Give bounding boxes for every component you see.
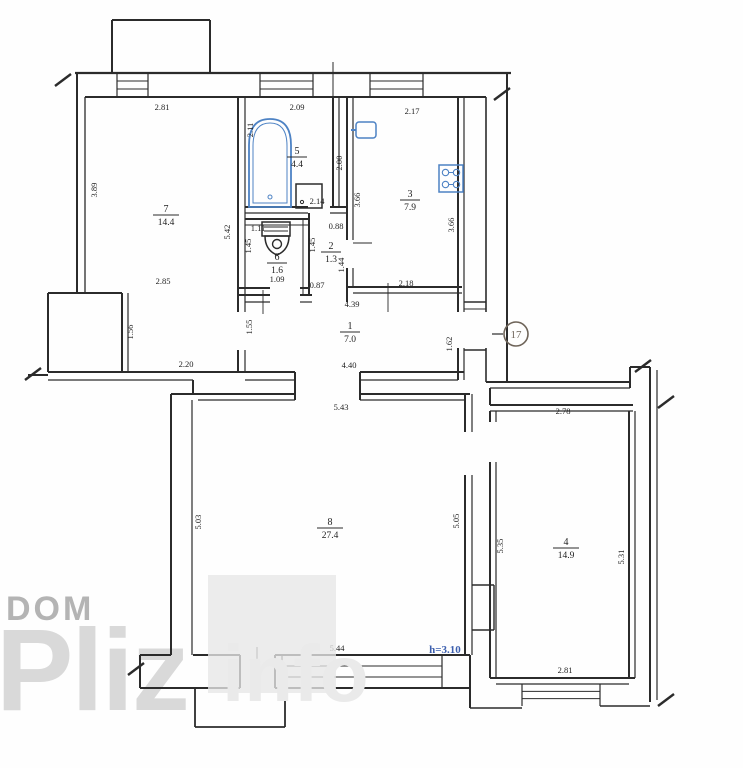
svg-text:8: 8 xyxy=(328,517,333,528)
room-labels-layer: 714.454.461.621.337.917.0827.4414.9 xyxy=(153,146,579,561)
dimension-label: 2.85 xyxy=(156,276,171,286)
dimension-label: 2.81 xyxy=(558,665,573,675)
dimension-label: 3.66 xyxy=(446,218,456,233)
room-1-label: 17.0 xyxy=(340,321,360,345)
dimension-label: 3.66 xyxy=(352,193,362,208)
dimension-label: 4.39 xyxy=(345,299,360,309)
dimension-label: 1.09 xyxy=(270,274,285,284)
svg-text:2: 2 xyxy=(329,241,334,252)
dimension-label: 5.03 xyxy=(193,515,203,530)
dimension-label: 5.42 xyxy=(222,225,232,240)
room-5-label: 54.4 xyxy=(287,146,307,170)
svg-text:7.0: 7.0 xyxy=(344,335,356,345)
toilet-icon xyxy=(262,222,290,255)
bathtub-icon xyxy=(249,119,291,207)
dimension-label: 1.11 xyxy=(251,223,266,233)
stove-icon xyxy=(439,165,463,192)
dimension-label: 1.44 xyxy=(336,257,346,273)
watermark-info: info xyxy=(222,634,369,714)
room-7-label: 714.4 xyxy=(153,204,179,228)
dimension-label: 2.00 xyxy=(334,156,344,171)
dimension-label: 0.87 xyxy=(310,280,325,290)
svg-text:4.4: 4.4 xyxy=(291,160,303,170)
dimension-label: 2.18 xyxy=(399,278,414,288)
dimension-label: 2.09 xyxy=(290,102,305,112)
dimension-label: 1.62 xyxy=(444,337,454,352)
dimension-label: 5.05 xyxy=(451,514,461,529)
svg-text:7.9: 7.9 xyxy=(404,203,416,213)
ceiling-height-note: h=3.10 xyxy=(429,644,461,656)
svg-text:6: 6 xyxy=(275,252,280,263)
floorplan-svg: 714.454.461.621.337.917.0827.4414.9 2.81… xyxy=(0,0,743,768)
dimension-label: 2.17 xyxy=(405,106,420,116)
svg-text:4: 4 xyxy=(564,537,569,548)
kitchen-sink-icon xyxy=(351,122,376,138)
section-ticks-layer xyxy=(25,74,674,706)
walls-layer xyxy=(28,20,657,727)
room-3-label: 37.9 xyxy=(400,189,420,213)
dimension-label: 4.40 xyxy=(342,360,357,370)
svg-text:1: 1 xyxy=(348,321,353,332)
room-4-label: 414.9 xyxy=(553,537,579,561)
dimension-label: 1.55 xyxy=(244,320,254,335)
floorplan-scan: DOM Pliz xyxy=(0,0,743,768)
svg-text:3: 3 xyxy=(408,189,413,200)
dimension-label: 2.78 xyxy=(556,406,571,416)
svg-text:14.9: 14.9 xyxy=(558,551,575,561)
dimension-label: 1.45 xyxy=(307,238,317,253)
dimension-label: 1.56 xyxy=(125,325,135,340)
dimension-label: 5.31 xyxy=(616,550,626,565)
dimension-label: 2.14 xyxy=(310,196,326,206)
dimension-label: 3.89 xyxy=(89,183,99,198)
svg-text:5: 5 xyxy=(295,146,300,157)
dimension-label: 2.81 xyxy=(155,102,170,112)
fixtures-layer xyxy=(249,119,463,255)
dimension-label: 2.20 xyxy=(179,359,194,369)
svg-text:7: 7 xyxy=(164,204,169,215)
dimension-label: 5.43 xyxy=(334,402,349,412)
dimension-label: 0.88 xyxy=(329,221,344,231)
dimension-label: 1.45 xyxy=(243,239,253,254)
svg-text:27.4: 27.4 xyxy=(322,531,339,541)
room-6-label: 61.6 xyxy=(267,252,287,276)
room-8-label: 827.4 xyxy=(317,517,343,541)
apartment-number: 17 xyxy=(511,329,523,341)
windows-layer xyxy=(117,73,600,706)
dimension-label: 5.35 xyxy=(495,539,505,554)
dimension-label: 2.11 xyxy=(245,123,255,138)
svg-text:14.4: 14.4 xyxy=(158,218,175,228)
